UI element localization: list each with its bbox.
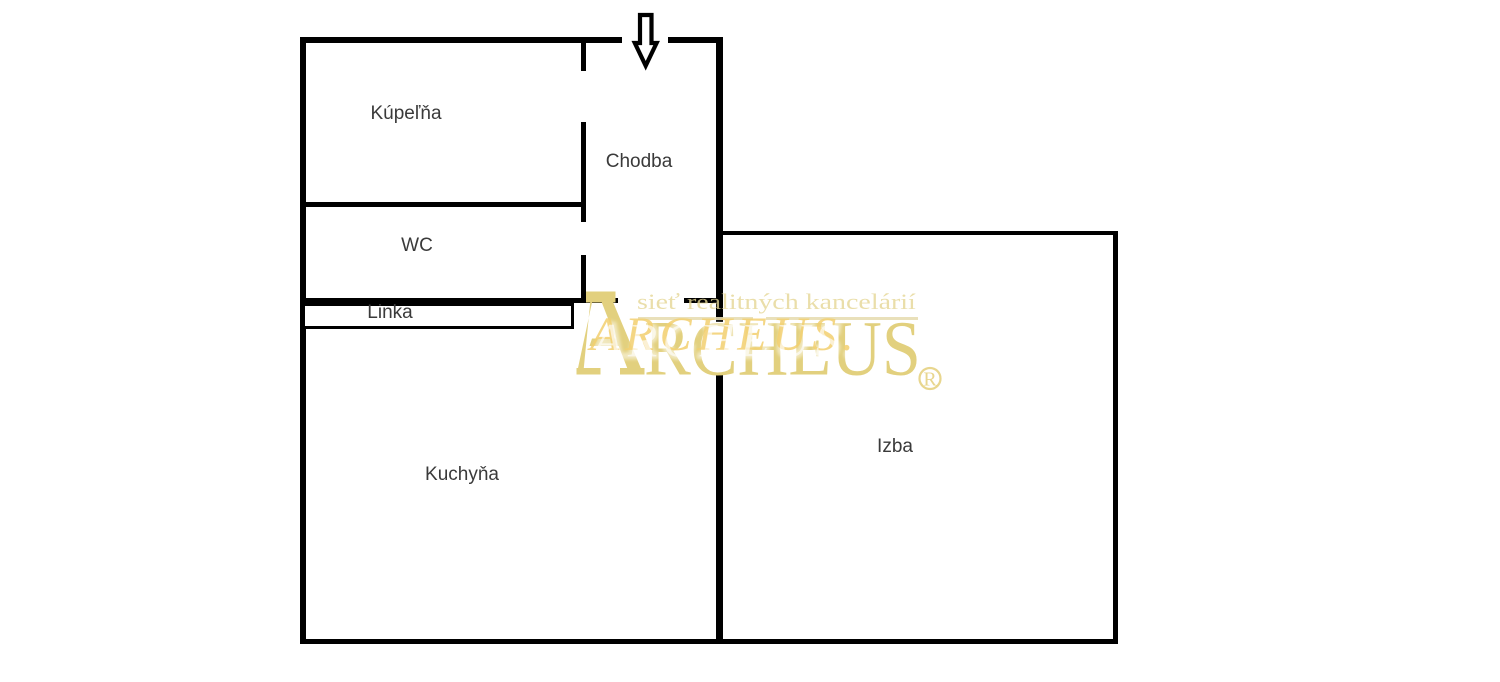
svg-text:ARCHEUS.: ARCHEUS. [590,315,862,368]
svg-text:R: R [923,369,937,391]
